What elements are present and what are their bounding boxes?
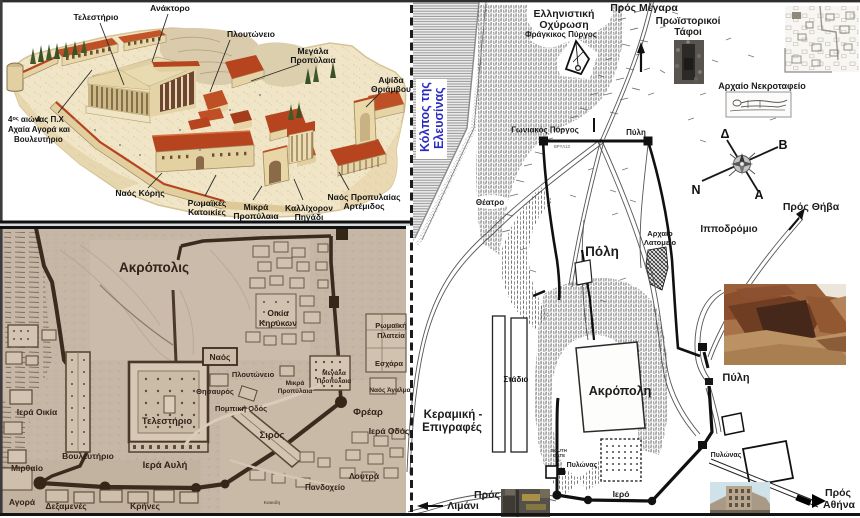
svg-text:Πόλη: Πόλη: [585, 244, 619, 259]
svg-text:Τελεστήριο: Τελεστήριο: [142, 416, 192, 427]
svg-text:Δ: Δ: [721, 127, 730, 141]
svg-text:Λατομείο: Λατομείο: [644, 238, 677, 247]
svg-text:Αρτέμιδος: Αρτέμιδος: [343, 201, 385, 211]
svg-text:BPYΛ13: BPYΛ13: [554, 144, 571, 149]
svg-text:Αρχαίο: Αρχαίο: [647, 229, 673, 238]
svg-text:Ιερό: Ιερό: [613, 489, 630, 499]
svg-text:Θέατρο: Θέατρο: [476, 198, 504, 207]
svg-text:Σιρός: Σιρός: [260, 430, 285, 441]
svg-text:Αρχαίο Νεκροταφείο: Αρχαίο Νεκροταφείο: [718, 81, 806, 91]
svg-text:Τάφοι: Τάφοι: [674, 27, 702, 38]
svg-text:Αγορά: Αγορά: [9, 497, 36, 507]
svg-text:Κόλπος της: Κόλπος της: [418, 82, 432, 152]
svg-text:Λουτρά: Λουτρά: [349, 471, 380, 481]
svg-text:Φράγκικος Πύργος: Φράγκικος Πύργος: [525, 30, 597, 39]
svg-text:Προπύλαια: Προπύλαια: [278, 387, 313, 395]
svg-text:Ναός: Ναός: [210, 352, 232, 362]
svg-text:Μιρθαίο: Μιρθαίο: [11, 463, 43, 473]
svg-text:Γωνιακός Πύργος: Γωνιακός Πύργος: [511, 126, 579, 135]
svg-text:Α: Α: [754, 188, 763, 202]
svg-text:Πρός: Πρός: [825, 487, 851, 499]
svg-text:Πλατεία: Πλατεία: [377, 331, 405, 340]
svg-text:Ιερά Αυλή: Ιερά Αυλή: [143, 460, 188, 471]
svg-text:Θησαυρός: Θησαυρός: [196, 387, 234, 396]
svg-text:Αχαία Αγορά και: Αχαία Αγορά και: [8, 125, 70, 134]
svg-text:Πρωϊστορικοί: Πρωϊστορικοί: [656, 16, 721, 27]
svg-text:Λιμάνι: Λιμάνι: [447, 500, 479, 512]
svg-text:Ακρόπολη: Ακρόπολη: [589, 384, 651, 398]
svg-text:Προπύλαια: Προπύλαια: [317, 377, 352, 385]
svg-text:Πύλη: Πύλη: [626, 128, 646, 137]
svg-text:Δεξαμενές: Δεξαμενές: [45, 501, 87, 511]
svg-text:Φρέαρ: Φρέαρ: [353, 407, 383, 418]
svg-text:Καικιδη: Καικιδη: [264, 500, 281, 505]
svg-text:Πρός Θήβα: Πρός Θήβα: [783, 201, 840, 213]
svg-text:Βουλευτήριο: Βουλευτήριο: [62, 451, 114, 461]
svg-text:Κηρύκων: Κηρύκων: [259, 318, 297, 328]
svg-text:Ιπποδρόμιο: Ιπποδρόμιο: [700, 224, 757, 235]
svg-text:Προπύλαια: Προπύλαια: [233, 211, 279, 221]
svg-text:Πυλώνας: Πυλώνας: [711, 451, 742, 459]
svg-text:Προπύλαια: Προπύλαια: [290, 55, 336, 65]
svg-text:Ιερά Οικία: Ιερά Οικία: [17, 407, 58, 417]
svg-text:Μικρά: Μικρά: [286, 380, 305, 387]
svg-text:Ανάκτορο: Ανάκτορο: [150, 3, 190, 13]
svg-text:Κεραμική -: Κεραμική -: [424, 409, 483, 421]
svg-text:Οικία: Οικία: [267, 308, 289, 318]
svg-text:Κρήνες: Κρήνες: [130, 501, 160, 511]
svg-text:Πλουτώνειο: Πλουτώνειο: [232, 370, 275, 379]
svg-text:Επιγραφές: Επιγραφές: [422, 422, 482, 434]
svg-text:Αθήνα: Αθήνα: [823, 499, 856, 511]
svg-text:Πομπική Οδός: Πομπική Οδός: [215, 404, 267, 413]
svg-text:Εσχάρα: Εσχάρα: [375, 359, 403, 368]
svg-text:Πυλώνας: Πυλώνας: [567, 461, 598, 469]
svg-text:Ναός Άγαλμα: Ναός Άγαλμα: [369, 386, 410, 394]
svg-text:Πρός Μέγαρα: Πρός Μέγαρα: [610, 2, 678, 14]
svg-text:Ιερά Οδός: Ιερά Οδός: [369, 426, 410, 436]
svg-text:Θριάμβου: Θριάμβου: [371, 84, 411, 94]
svg-text:Κατοικίες: Κατοικίες: [188, 207, 226, 217]
svg-text:Πανδοχείο: Πανδοχείο: [305, 483, 345, 492]
svg-text:Πύλη: Πύλη: [722, 372, 749, 384]
svg-text:Ν: Ν: [691, 183, 700, 197]
svg-text:Μεγάλα: Μεγάλα: [322, 369, 346, 377]
svg-text:Ρωμαϊκή: Ρωμαϊκή: [375, 321, 407, 330]
svg-text:Β: Β: [778, 138, 787, 152]
svg-text:GATE: GATE: [553, 453, 565, 458]
svg-text:Στάδιο: Στάδιο: [504, 375, 529, 384]
svg-text:Βουλευτήριο: Βουλευτήριο: [14, 135, 63, 144]
svg-text:Πλουτώνειο: Πλουτώνειο: [227, 29, 275, 39]
svg-text:Ακρόπολις: Ακρόπολις: [119, 260, 189, 275]
svg-text:Τελεστήριο: Τελεστήριο: [74, 12, 119, 22]
svg-text:Ελευσίνας: Ελευσίνας: [432, 87, 446, 149]
svg-text:Ναός Κόρης: Ναός Κόρης: [115, 188, 165, 198]
